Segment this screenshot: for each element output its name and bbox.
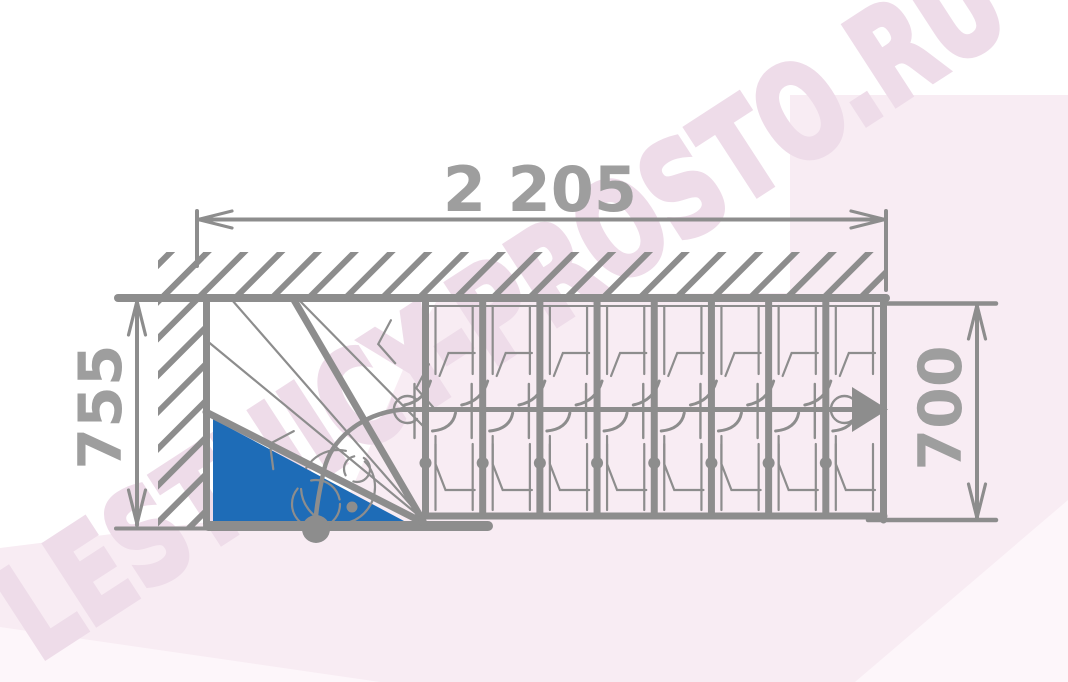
riser-dowel-dot xyxy=(420,457,432,469)
wall-hatch-top xyxy=(158,252,886,294)
riser-dowel-dot xyxy=(477,457,489,469)
dimension-right-label: 700 xyxy=(906,345,976,470)
riser-dowel-dot xyxy=(648,457,660,469)
dimension-left-label: 755 xyxy=(66,344,136,469)
riser-dowel-dot xyxy=(820,457,832,469)
newel-post xyxy=(302,515,330,543)
riser-dowel-dot xyxy=(705,457,717,469)
riser-dowel-dot xyxy=(534,457,546,469)
stair-plan-drawing: LESTNICY-PROSTO.RU xyxy=(0,0,1068,682)
winder-dowel-dot xyxy=(347,502,358,513)
wall-hatch-left xyxy=(158,252,204,528)
stair-plan-svg: LESTNICY-PROSTO.RU xyxy=(0,0,1068,682)
dimension-top-label: 2 205 xyxy=(443,153,637,226)
riser-dowel-dot xyxy=(763,457,775,469)
riser-dowel-dot xyxy=(591,457,603,469)
